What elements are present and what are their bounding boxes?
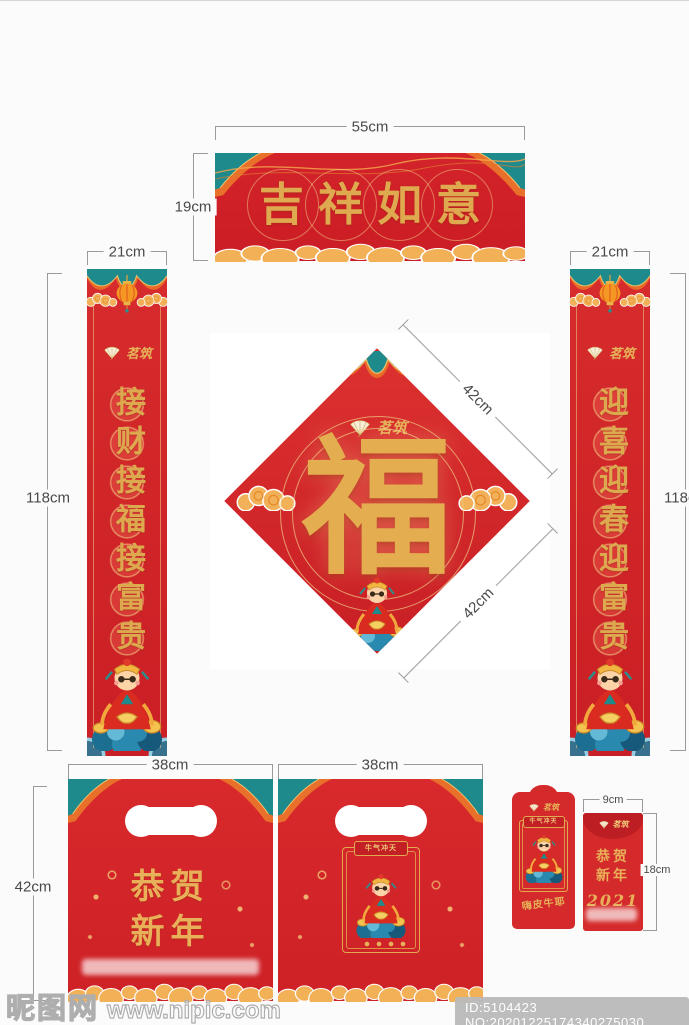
frame-title-banner: 牛气冲天 [523,816,565,828]
watermark-site-name: 昵图网 [6,985,99,1025]
left-couplet-text: 接财接福接富贵 [87,383,167,661]
image-id-badge: ID:5104423 NO:20201225174340275030 [455,997,689,1025]
lantern-icon [114,274,140,314]
left-couplet-height-label: 118cm [21,490,75,507]
dimension-tick [482,764,483,779]
dimension-tick [278,764,279,779]
gift-bag-illustrated: 牛气冲天 [278,779,483,1001]
left-couplet: 茗筑 接财接福接富贵 [87,269,167,756]
dimension-tick [33,786,47,787]
bag1-width-label: 38cm [147,757,194,774]
fu-square-content: 茗筑 福 [269,393,485,609]
lantern-icon [597,274,623,314]
envelope-width-label: 9cm [600,794,627,806]
site-watermark: 昵图网 www.nipic.com [6,985,281,1025]
red-envelope-back: 茗筑 牛气冲天 嗨皮牛耶 [512,792,575,929]
dimension-tick [642,799,643,812]
brand-name: 茗筑 [543,802,559,813]
brand-name: 茗筑 [609,343,635,362]
bag-greeting-text: 恭贺新年 [129,865,213,955]
brand-logo: 茗筑 [87,343,167,362]
envelope-height-label: 18cm [641,864,674,876]
banner-width-label: 55cm [347,119,394,136]
bag-corner-right-decor [427,779,483,823]
ginkgo-fan-icon [528,803,540,812]
brand-logo: 茗筑 [583,819,643,830]
dimension-tick [272,764,273,779]
dimension-tick [670,273,685,274]
dimension-tick [643,930,656,931]
dimension-tick [166,251,167,265]
left-couplet-height-dimension-line [47,273,48,751]
bag-handle-cutout [129,807,213,835]
ornamental-frame: 牛气冲天 [519,820,568,892]
right-couplet: 茗筑 迎喜迎春迎富贵 [570,269,650,756]
right-couplet-height-dimension-line [685,273,686,751]
bag-height-label: 42cm [10,879,57,896]
bag-handle-cutout [339,807,423,835]
banner-height-label: 19cm [170,199,217,216]
gold-cloud-icon [567,291,601,307]
god-of-wealth-illustration [570,655,650,751]
frame-title-banner: 牛气冲天 [354,841,408,856]
gold-cloud-icon [84,291,118,307]
brand-logo: 茗筑 [570,343,650,362]
dimension-tick [68,764,69,779]
dimension-tick [643,813,656,814]
ginkgo-fan-icon [585,345,605,360]
blurred-watermark-strip [586,908,637,921]
right-couplet-height-label: 118cm [659,490,689,507]
gold-cloud-icon [619,291,653,307]
ginkgo-fan-icon [102,345,122,360]
right-couplet-text: 迎喜迎春迎富贵 [570,383,650,661]
dimension-tick [87,251,88,265]
dimension-tick [193,153,208,154]
fu-character: 福 [269,429,485,587]
bag-corner-left-decor [278,779,334,823]
cloud-strip-icon [215,240,525,262]
dimension-tick [649,251,650,265]
red-envelope-front: 茗筑 恭贺新年 2021 [583,813,643,931]
dimension-tick [47,750,62,751]
dimension-tick [193,260,208,261]
brand-name: 茗筑 [613,819,629,830]
ginkgo-fan-icon [598,820,610,829]
envelope-greeting-text: 恭贺新年 [595,848,631,886]
god-of-wealth-illustration [523,833,565,883]
bag-corner-left-decor [68,779,124,823]
god-of-wealth-illustration [87,655,167,751]
right-couplet-width-label: 21cm [587,244,634,261]
gift-bag-text: 恭贺新年 [68,779,273,1001]
banner-greeting-text: 吉祥如意 [215,181,525,229]
dimension-tick [524,126,525,140]
brand-name: 茗筑 [126,343,152,362]
ornamental-frame: 牛气冲天 [342,847,420,953]
dimension-tick [47,273,62,274]
dimension-tick [670,750,685,751]
god-of-wealth-illustration [353,872,409,938]
frame-dots-decor [343,941,419,947]
bag2-width-label: 38cm [357,757,404,774]
blurred-watermark-strip [82,959,259,975]
envelope-scallop-top [528,785,559,799]
dimension-tick [215,126,216,140]
horizontal-banner: 吉祥如意 [215,153,525,261]
new-year-packaging-design-sheet: 吉祥如意 55cm 19cm 茗筑 接财接福接富贵 21cm 118cm [0,0,689,1025]
envelope-greeting-calligraphy: 嗨皮牛耶 [511,891,575,914]
brand-logo: 茗筑 [512,802,575,813]
gold-cloud-icon [136,291,170,307]
cloud-strip-icon [278,980,483,1002]
dimension-tick [583,799,584,812]
dimension-tick [570,251,571,265]
watermark-site-url: www.nipic.com [107,997,281,1025]
bag-corner-right-decor [217,779,273,823]
left-couplet-width-label: 21cm [104,244,151,261]
